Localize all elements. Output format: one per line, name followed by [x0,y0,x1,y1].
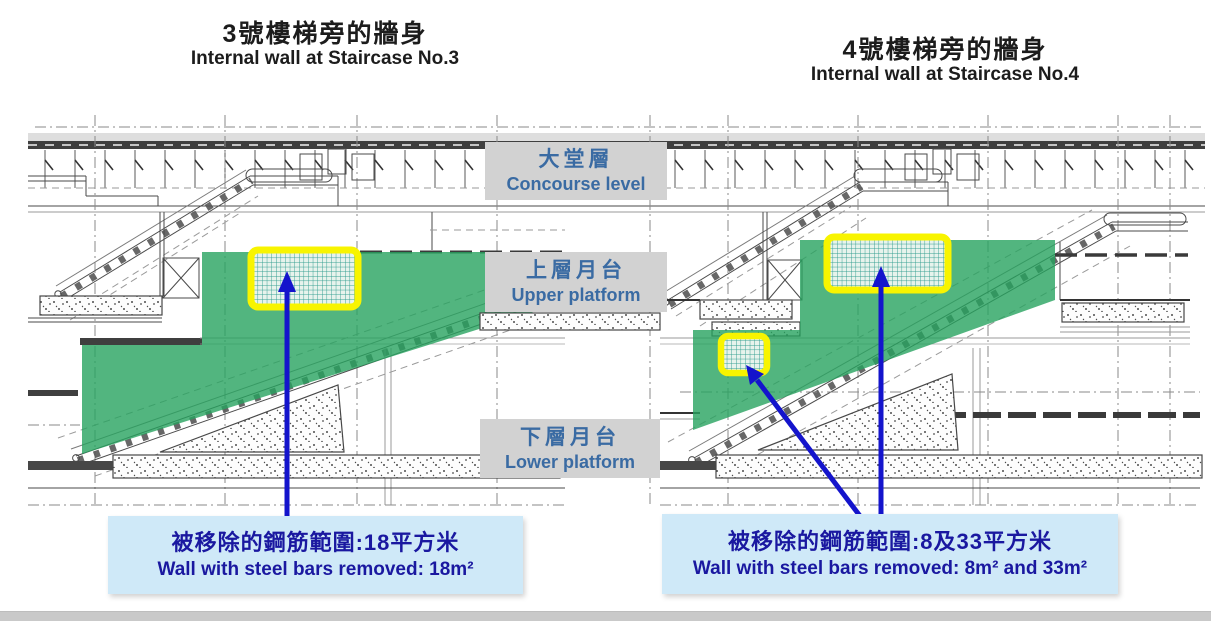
note-left-18m2: 被移除的鋼筋範圍:18平方米 Wall with steel bars remo… [108,516,523,594]
level-label-lower-platform: 下層月台 Lower platform [480,419,660,478]
left-upper-platform-slab [40,296,162,315]
slide-bottom-edge [0,611,1211,621]
note-left-zh: 被移除的鋼筋範圍:18平方米 [108,528,523,558]
upper-platform-label-en: Upper platform [485,284,667,306]
right-steel-removed-area-8m2 [721,336,767,373]
title-right: 4號樓梯旁的牆身 Internal wall at Staircase No.4 [745,36,1145,86]
right-section-drawing [660,149,1202,505]
title-left: 3號樓梯旁的牆身 Internal wall at Staircase No.3 [130,20,520,70]
level-label-concourse: 大堂層 Concourse level [485,142,667,200]
level-label-upper-platform: 上層月台 Upper platform [485,252,667,312]
note-right-zh: 被移除的鋼筋範圍:8及33平方米 [662,527,1118,557]
title-right-zh: 4號樓梯旁的牆身 [745,36,1145,64]
right-upper-platform-slab [700,300,792,319]
lower-platform-label-en: Lower platform [480,451,660,473]
slide-diagram: 3號樓梯旁的牆身 Internal wall at Staircase No.3… [0,0,1211,621]
title-left-en: Internal wall at Staircase No.3 [130,48,520,70]
left-braced-column [163,258,199,298]
right-braced-column [768,260,802,300]
title-left-zh: 3號樓梯旁的牆身 [130,20,520,48]
title-right-en: Internal wall at Staircase No.4 [745,64,1145,86]
right-lower-slab [716,455,1202,478]
lower-platform-label-zh: 下層月台 [480,425,660,451]
left-steel-removed-area-18m2 [251,250,358,307]
concourse-label-en: Concourse level [485,173,667,195]
concourse-label-zh: 大堂層 [485,147,667,173]
note-left-en: Wall with steel bars removed: 18m² [108,558,523,582]
note-right-8-33m2: 被移除的鋼筋範圍:8及33平方米 Wall with steel bars re… [662,514,1118,594]
note-right-en: Wall with steel bars removed: 8m² and 33… [662,557,1118,581]
upper-platform-label-zh: 上層月台 [485,258,667,284]
